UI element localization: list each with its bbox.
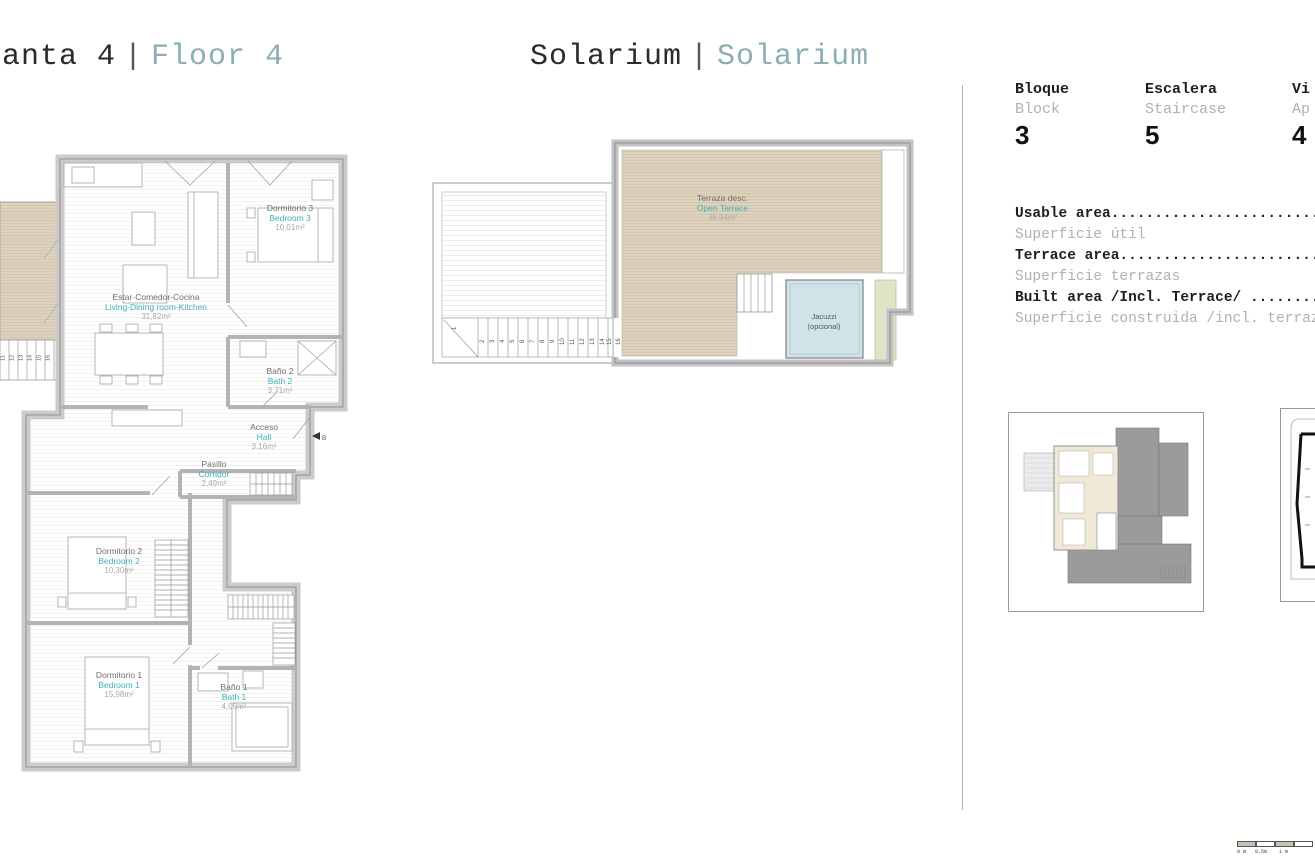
scale-label-0: 0 m bbox=[1237, 849, 1246, 855]
room-name-en: Bath 1 bbox=[190, 692, 278, 702]
block-column: Bloque Block 3 bbox=[1015, 80, 1069, 150]
staircase-value: 5 bbox=[1145, 120, 1226, 150]
solarium-title-es: Solarium bbox=[530, 40, 682, 74]
room-area: 3,16m² bbox=[225, 442, 303, 452]
room-area: 36,94m² bbox=[655, 213, 790, 223]
apartment-label-en: Ap bbox=[1292, 100, 1310, 120]
terrace-area-row: Terrace area........................ bbox=[1015, 246, 1315, 267]
scale-bar: 0 m 0.5m 1 m bbox=[1237, 841, 1315, 861]
room-name-es: Baño 2 bbox=[232, 366, 328, 376]
room-name-es: Baño 1 bbox=[190, 682, 278, 692]
built-area-row: Built area /Incl. Terrace/ ......... bbox=[1015, 288, 1315, 309]
room-label-bedroom3: Dormitorio 3 Bedroom 3 10,01m² bbox=[240, 203, 340, 233]
panel-divider-line bbox=[962, 85, 963, 810]
siteplan-box bbox=[1280, 408, 1315, 602]
room-label-hall: Acceso Hall 3,16m² bbox=[225, 422, 303, 452]
floor4-title-separator: | bbox=[116, 40, 151, 74]
scale-segment bbox=[1294, 841, 1313, 847]
room-label-corridor: Pasillo Corridor 2,49m² bbox=[180, 459, 248, 489]
solarium-title: Solarium|Solarium bbox=[530, 40, 869, 74]
stair-step-number: 15 bbox=[607, 338, 613, 345]
jacuzzi-label-line2: (opcional) bbox=[808, 322, 841, 331]
siteplan-plot-outline bbox=[1297, 434, 1315, 567]
block-label-es: Bloque bbox=[1015, 80, 1069, 100]
solarium-title-separator: | bbox=[682, 40, 717, 74]
solarium-plan-drawing: 1 2 3 4 5 6 7 8 9 10 11 12 13 14 15 16 bbox=[420, 130, 920, 380]
solarium-plan: 1 2 3 4 5 6 7 8 9 10 11 12 13 14 15 16 T… bbox=[420, 130, 920, 380]
staircase-column: Escalera Staircase 5 bbox=[1145, 80, 1226, 150]
scale-segment bbox=[1275, 841, 1294, 847]
stair-step-number: 16 bbox=[616, 338, 622, 345]
terrace-parapet bbox=[882, 150, 904, 273]
room-area: 2,49m² bbox=[180, 479, 248, 489]
floor4-title: anta 4|Floor 4 bbox=[2, 40, 284, 74]
stair-step-number: 16 bbox=[46, 355, 52, 361]
jacuzzi-steps bbox=[737, 274, 772, 312]
lower-roof-surface bbox=[442, 192, 606, 318]
room-name-es: Acceso bbox=[225, 422, 303, 432]
usable-area-row: Usable area......................... bbox=[1015, 204, 1315, 225]
solarium-title-en: Solarium bbox=[717, 40, 869, 74]
keyplan-box bbox=[1008, 412, 1204, 612]
stair-step-number: 13 bbox=[590, 338, 596, 345]
stair-step-number: 14 bbox=[600, 338, 606, 345]
floor4-title-es: anta 4 bbox=[2, 40, 116, 74]
section-marker-label: B bbox=[322, 435, 326, 442]
floorplan-page: { "page": { "title_left": {"es": "anta 4… bbox=[0, 0, 1315, 863]
room-name-en: Hall bbox=[225, 432, 303, 442]
room-area: 10,30m² bbox=[58, 566, 180, 576]
room-area: 4,09m² bbox=[190, 702, 278, 712]
apartment-value: 4 bbox=[1292, 120, 1310, 150]
room-name-en: Bedroom 3 bbox=[240, 213, 340, 223]
room-name-es: Terraza desc. bbox=[655, 193, 790, 203]
room-label-bedroom2: Dormitorio 2 Bedroom 2 10,30m² bbox=[58, 546, 180, 576]
keyplan-terrace bbox=[1024, 453, 1054, 491]
siteplan-marks bbox=[1305, 469, 1310, 525]
room-name-en: Corridor bbox=[180, 469, 248, 479]
siteplan-drawing bbox=[1281, 409, 1315, 601]
stair-step-number: 11 bbox=[570, 338, 576, 345]
room-label-bath1: Baño 1 Bath 1 4,09m² bbox=[190, 682, 278, 712]
staircase-label-en: Staircase bbox=[1145, 100, 1226, 120]
room-name-es: Dormitorio 1 bbox=[58, 670, 180, 680]
floor4-plan: 11 12 13 14 15 16 bbox=[0, 145, 350, 780]
scale-segment bbox=[1256, 841, 1275, 847]
apartment-column: Vi Ap 4 bbox=[1292, 80, 1310, 150]
jacuzzi-label-line1: Jacuzzi bbox=[811, 312, 836, 321]
room-name-en: Living-Dining room-Kitchen bbox=[75, 302, 237, 312]
room-area: 31,82m² bbox=[75, 312, 237, 322]
keyplan-drawing bbox=[1009, 413, 1203, 611]
jacuzzi-label: Jacuzzi (opcional) bbox=[785, 312, 863, 332]
room-name-en: Bedroom 1 bbox=[58, 680, 180, 690]
room-name-en: Bath 2 bbox=[232, 376, 328, 386]
scale-label-05: 0.5m bbox=[1255, 849, 1267, 855]
solarium-stair bbox=[442, 318, 613, 357]
room-area: 3,71m² bbox=[232, 386, 328, 396]
floor4-title-en: Floor 4 bbox=[151, 40, 284, 74]
room-label-living: Estar-Comedor-Cocina Living-Dining room-… bbox=[75, 292, 237, 322]
room-name-en: Bedroom 2 bbox=[58, 556, 180, 566]
stair-step-number: 12 bbox=[580, 338, 586, 345]
room-name-es: Estar-Comedor-Cocina bbox=[75, 292, 237, 302]
room-name-es: Dormitorio 2 bbox=[58, 546, 180, 556]
scale-segment bbox=[1237, 841, 1256, 847]
stair-step-number: 15 bbox=[37, 355, 43, 361]
room-area: 10,01m² bbox=[240, 223, 340, 233]
room-label-bedroom1: Dormitorio 1 Bedroom 1 15,98m² bbox=[58, 670, 180, 700]
area-summary: Usable area......................... Sup… bbox=[1015, 204, 1315, 330]
room-label-bath2: Baño 2 Bath 2 3,71m² bbox=[232, 366, 328, 396]
stair-step-number: 10 bbox=[560, 338, 566, 345]
terrace-area-row-es: Superficie terrazas bbox=[1015, 267, 1315, 288]
room-name-es: Pasillo bbox=[180, 459, 248, 469]
terrace-deck bbox=[0, 202, 62, 340]
apartment-label-es: Vi bbox=[1292, 80, 1310, 100]
room-area: 15,98m² bbox=[58, 690, 180, 700]
room-name-en: Open Terrace bbox=[655, 203, 790, 213]
block-value: 3 bbox=[1015, 120, 1069, 150]
block-label-en: Block bbox=[1015, 100, 1069, 120]
room-label-open-terrace: Terraza desc. Open Terrace 36,94m² bbox=[655, 193, 790, 223]
built-area-row-es: Superficie construida /incl. terraz bbox=[1015, 309, 1315, 330]
stair-step-number: 14 bbox=[28, 355, 34, 361]
keyplan-core bbox=[1097, 513, 1116, 550]
stair-step-number: 13 bbox=[19, 355, 25, 361]
staircase-label-es: Escalera bbox=[1145, 80, 1226, 100]
usable-area-row-es: Superficie útil bbox=[1015, 225, 1315, 246]
room-name-es: Dormitorio 3 bbox=[240, 203, 340, 213]
scale-label-1: 1 m bbox=[1279, 849, 1288, 855]
stair-step-number: 12 bbox=[10, 355, 16, 361]
stair-step-number: 11 bbox=[1, 355, 7, 361]
